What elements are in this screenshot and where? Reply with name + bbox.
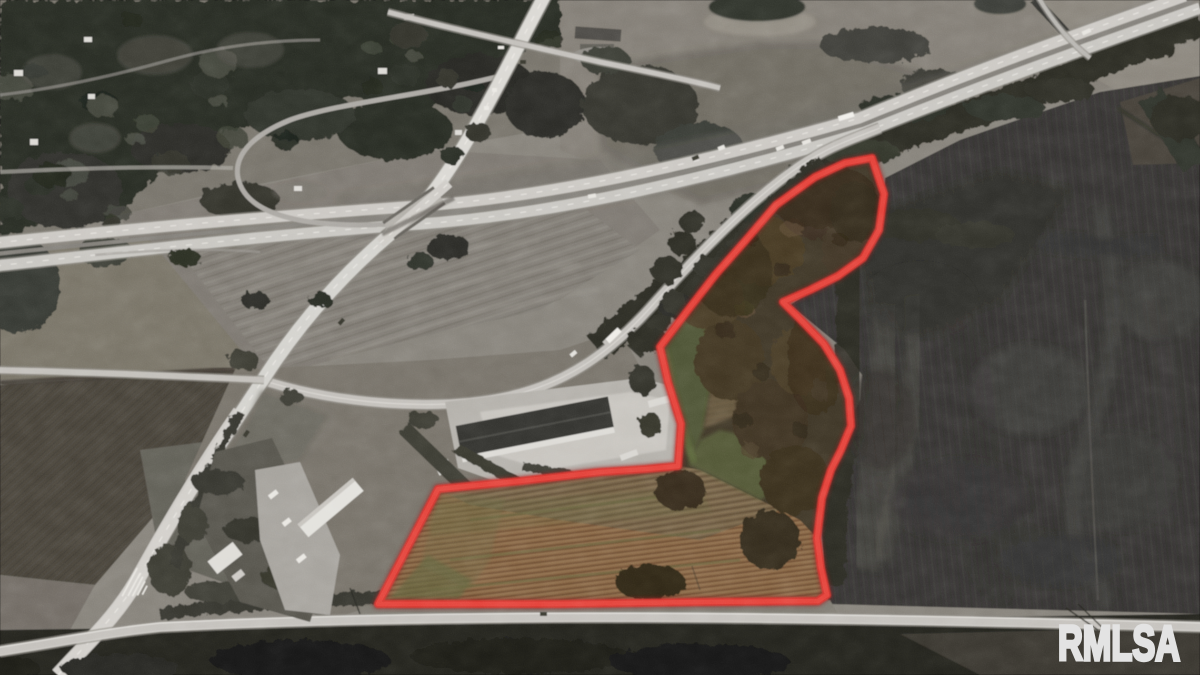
svg-text:RMLSA: RMLSA xyxy=(1058,617,1180,671)
